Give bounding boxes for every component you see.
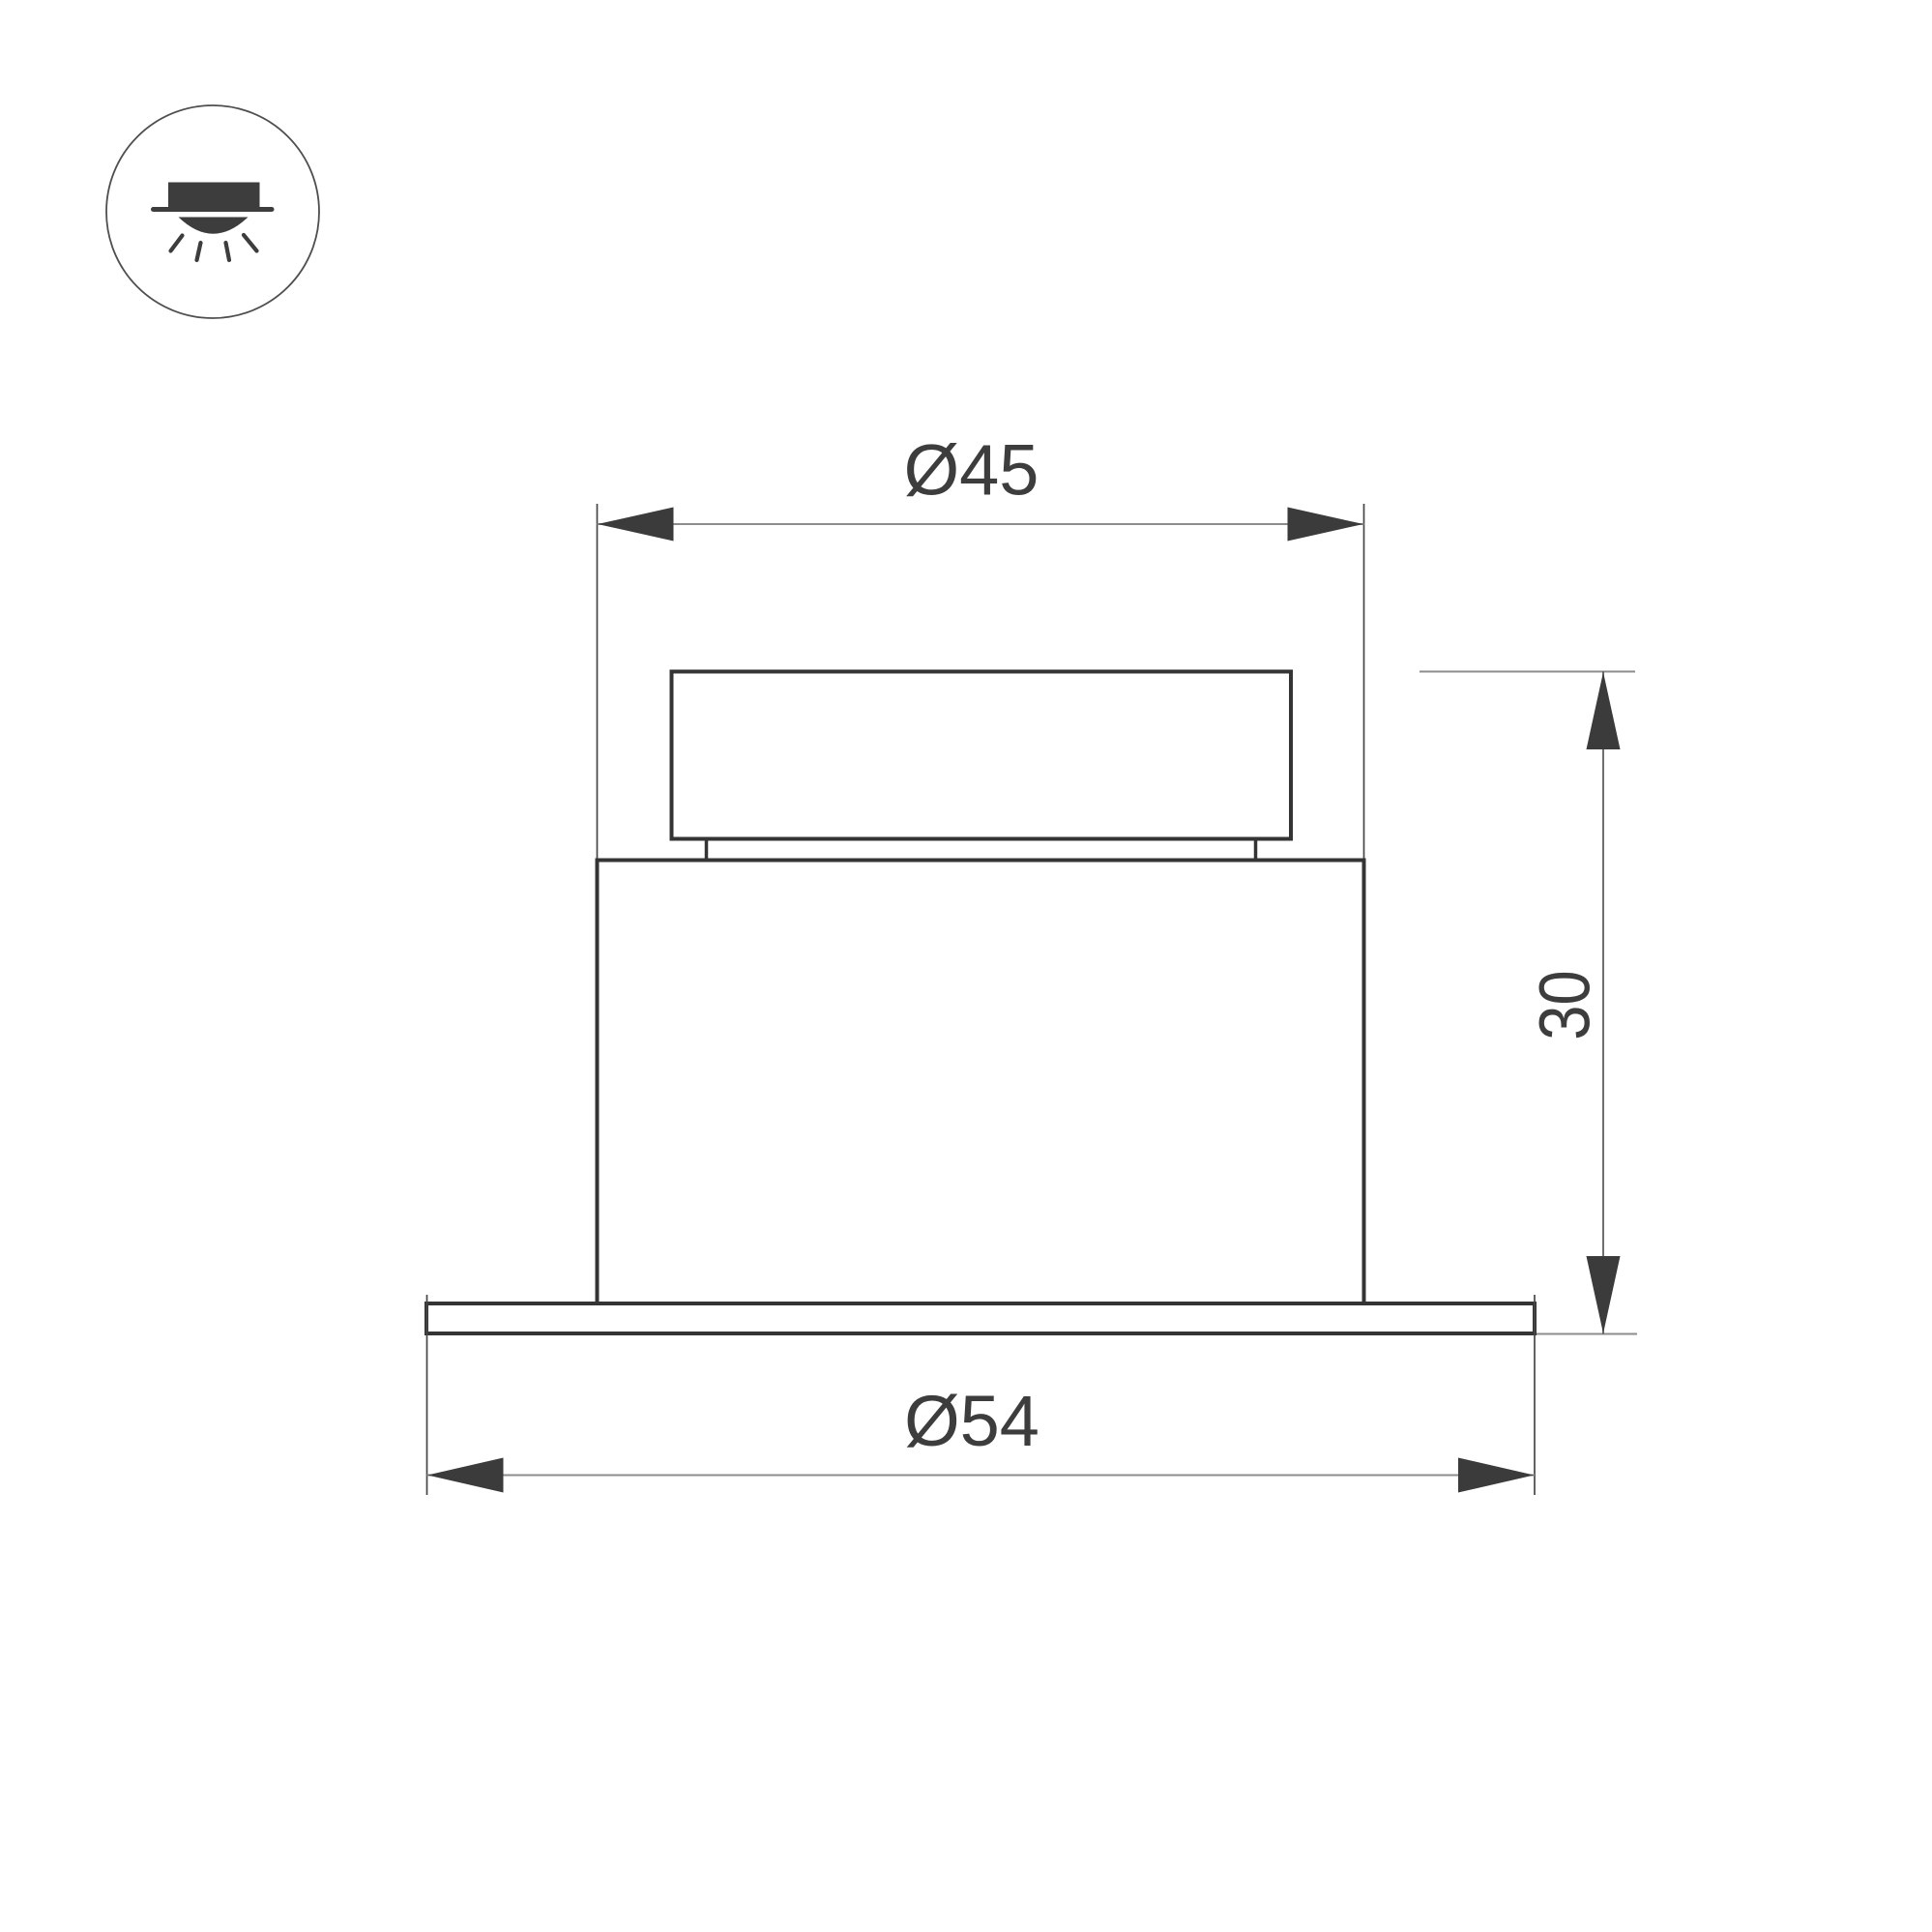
svg-text:Ø45: Ø45 xyxy=(904,430,1039,511)
svg-text:30: 30 xyxy=(1525,970,1605,1039)
svg-text:Ø54: Ø54 xyxy=(904,1381,1039,1461)
